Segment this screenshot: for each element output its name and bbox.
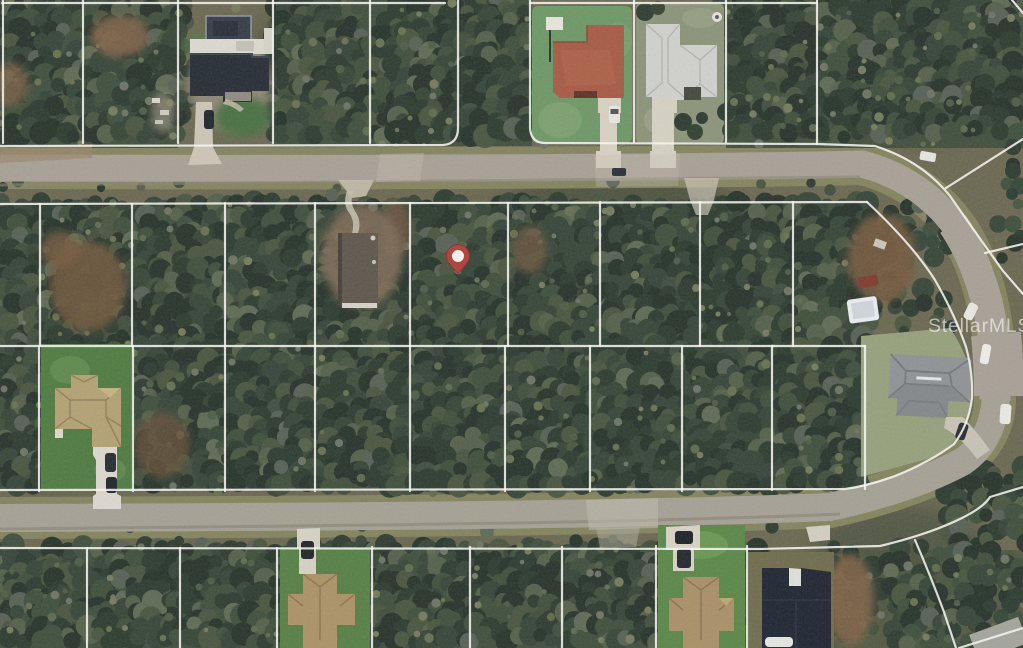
svg-text:StellarMLS: StellarMLS: [928, 315, 1023, 337]
